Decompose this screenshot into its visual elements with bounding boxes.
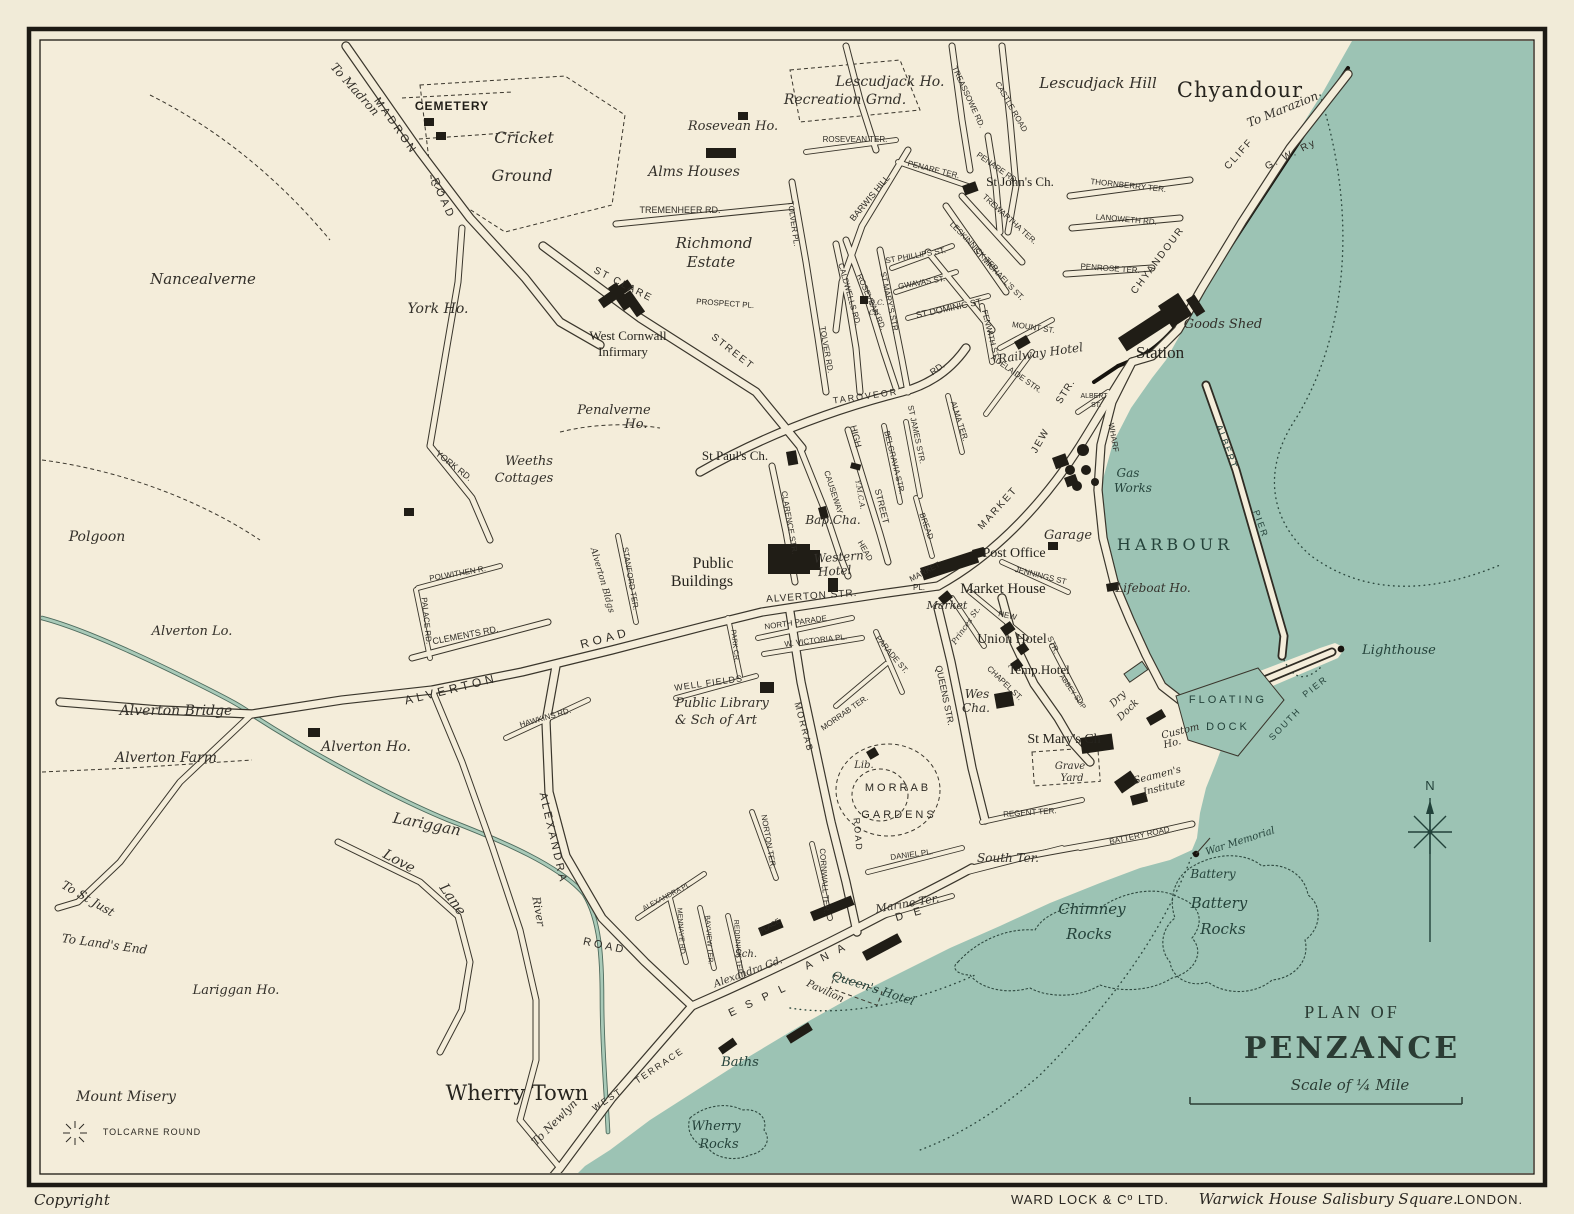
map-label-hotel: Hotel: [817, 563, 853, 579]
map-label-st: ST.: [1091, 402, 1101, 409]
map-label-chimney: Chimney: [1058, 900, 1126, 918]
map-label-alverton-lo: Alverton Lo.: [151, 624, 233, 639]
map-label-cha: Cha.: [962, 701, 990, 715]
map-label-post-office: Post Office: [982, 546, 1045, 561]
map-label-union-hotel: Union Hotel: [977, 632, 1047, 647]
map-label-mount-misery: Mount Misery: [75, 1089, 177, 1105]
map-label-lifeboat-ho: Lifeboat Ho.: [1114, 581, 1190, 595]
map-label-lescudjack-ho: Lescudjack Ho.: [835, 74, 945, 90]
map-label-polgoon: Polgoon: [68, 529, 126, 545]
map-label-nancealverne: Nancealverne: [149, 270, 256, 288]
map-label-penalverne: Penalverne: [576, 403, 651, 418]
map-label-ch: Ch.: [869, 309, 881, 317]
map-label-wherry: Wherry: [691, 1119, 741, 1134]
map-label-baths: Baths: [720, 1055, 759, 1070]
map-label-lib: Lib.: [853, 760, 873, 771]
map-title-plan-of: PLAN OF: [1304, 1002, 1400, 1022]
map-label-rosevean-ho: Rosevean Ho.: [687, 119, 778, 134]
map-label-richmond: Richmond: [675, 234, 753, 252]
map-label-wes: Wes: [965, 687, 990, 701]
copyright-note: Copyright: [34, 1191, 111, 1209]
map-label-cemetery: CEMETERY: [415, 99, 489, 113]
alms-houses-building: [706, 148, 736, 158]
map-label-lescudjack-hill: Lescudjack Hill: [1038, 74, 1157, 92]
map-label-rocks: Rocks: [1199, 920, 1246, 938]
map-label-r-c: R.C.: [869, 299, 885, 307]
map-label-south-ter: South Ter.: [977, 851, 1039, 865]
map-label-tremenheer-rd: TREMENHEER RD.: [639, 205, 720, 215]
publisher-name: WARD LOCK & Cº LTD.: [1011, 1192, 1169, 1207]
map-label-estate: Estate: [686, 253, 736, 271]
map-label-rocks: Rocks: [1065, 925, 1112, 943]
map-label-rocks: Rocks: [698, 1137, 739, 1152]
map-label-works: Works: [1114, 481, 1152, 495]
map-label-alverton-bridge: Alverton Bridge: [118, 703, 233, 719]
map-label-public-library: Public Library: [674, 696, 769, 711]
map-label-garage: Garage: [1044, 528, 1092, 543]
map-label-st-mary-s-ch: St Mary's Ch: [1027, 732, 1100, 747]
map-label-weeths: Weeths: [505, 454, 553, 469]
map-label-infirmary: Infirmary: [598, 344, 648, 359]
vintage-map-page: N PLAN OF PENZANCE Scale of ¼ Mile To Ma…: [0, 0, 1574, 1214]
map-label-battery: Battery: [1189, 867, 1235, 881]
map-label-bap-cha: Bap.Cha.: [804, 513, 860, 527]
map-label-alverton-farm: Alverton Farm: [113, 750, 217, 766]
public-library-building: [760, 682, 774, 693]
map-label-market: Market: [926, 599, 968, 612]
map-label-harbour: HARBOUR: [1117, 535, 1233, 554]
map-scale-label: Scale of ¼ Mile: [1291, 1076, 1410, 1094]
map-label-alverton-ho: Alverton Ho.: [319, 739, 411, 755]
map-label-lariggan-ho: Lariggan Ho.: [192, 983, 280, 998]
map-label-morrab: MORRAB: [865, 782, 931, 794]
map-label-sch: Sch.: [735, 949, 757, 960]
map-label-ground: Ground: [492, 166, 553, 185]
map-label-chyandour: Chyandour: [1177, 78, 1303, 102]
lighthouse-dot: [1338, 646, 1345, 653]
map-label-ho: Ho.: [623, 417, 647, 432]
map-label-public: Public: [693, 555, 734, 572]
map-label-yard: Yard: [1061, 773, 1084, 784]
map-label-tolcarne-round: TOLCARNE ROUND: [103, 1127, 201, 1137]
map-label-lighthouse: Lighthouse: [1361, 643, 1436, 658]
map-title: PENZANCE: [1244, 1031, 1460, 1066]
publisher-city: LONDON.: [1457, 1192, 1523, 1207]
map-label-sch-of-art: & Sch of Art: [675, 713, 758, 728]
publisher-square: Salisbury Square.: [1322, 1190, 1457, 1208]
penzance-town-plan: N PLAN OF PENZANCE Scale of ¼ Mile To Ma…: [0, 0, 1574, 1214]
map-label-battery: Battery: [1190, 894, 1248, 912]
map-label-west-cornwall: West Cornwall: [589, 328, 667, 343]
map-label-rosevean-ter: ROSEVEAN TER.: [823, 135, 888, 144]
map-label-buildings: Buildings: [671, 573, 733, 590]
map-label-york-ho: York Ho.: [408, 301, 469, 317]
map-label-st-paul-s-ch: St Paul's Ch.: [702, 448, 768, 463]
map-label-st-john-s-ch: St John's Ch.: [986, 174, 1054, 189]
compass-north-label: N: [1425, 778, 1434, 793]
publisher-house: Warwick House: [1199, 1190, 1318, 1208]
map-label-cottages: Cottages: [495, 471, 554, 486]
map-label-albert: ALBERT: [1080, 393, 1108, 400]
map-label-market-house: Market House: [960, 581, 1046, 597]
map-label-goods-shed: Goods Shed: [1184, 317, 1262, 332]
map-label-station: Station: [1136, 343, 1185, 362]
map-label-alms-houses: Alms Houses: [646, 164, 740, 180]
map-label-floating: FLOATING: [1189, 694, 1267, 706]
map-label-pl: PL.: [913, 583, 925, 592]
map-label-gas: Gas: [1117, 466, 1140, 480]
map-label-grave: Grave: [1055, 761, 1085, 772]
map-label-recreation-grnd: Recreation Grnd.: [783, 92, 906, 108]
map-label-dock: DOCK: [1206, 721, 1250, 733]
map-label-cricket: Cricket: [494, 128, 554, 147]
map-label-gardens: GARDENS: [861, 809, 936, 821]
